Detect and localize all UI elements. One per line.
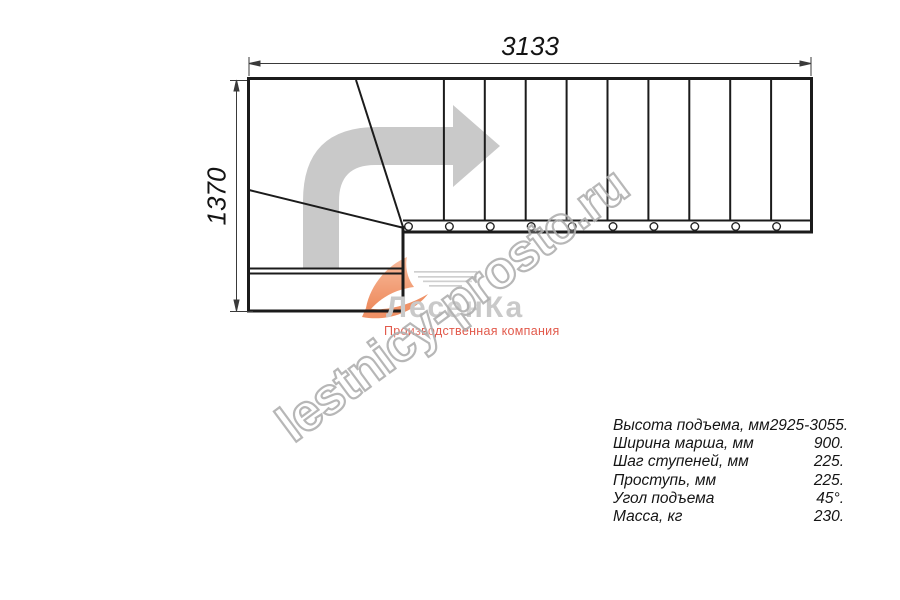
spec-row-tread: Проступь, мм 225. bbox=[613, 472, 844, 490]
height-dimension-label: 1370 bbox=[202, 147, 233, 247]
spec-label: Угол подъема bbox=[613, 490, 714, 508]
staircase-blueprint: 3133 1370 ЛесенКа Производственная компа… bbox=[0, 0, 900, 600]
spec-label: Ширина марша, мм bbox=[613, 435, 754, 453]
spec-value: 230. bbox=[814, 508, 844, 526]
spec-row-step-pitch: Шаг ступеней, мм 225. bbox=[613, 453, 844, 471]
spec-row-mass: Масса, кг 230. bbox=[613, 508, 844, 526]
spec-value: 900. bbox=[814, 435, 844, 453]
spec-table: Высота подъема, мм 2925-3055. Ширина мар… bbox=[613, 417, 844, 526]
spec-value: 2925-3055. bbox=[770, 417, 848, 435]
spec-value: 225. bbox=[814, 472, 844, 490]
spec-label: Масса, кг bbox=[613, 508, 682, 526]
spec-value: 45°. bbox=[816, 490, 844, 508]
width-dimension-label: 3133 bbox=[480, 31, 580, 62]
spec-value: 225. bbox=[814, 453, 844, 471]
spec-row-angle: Угол подъема 45°. bbox=[613, 490, 844, 508]
spec-label: Шаг ступеней, мм bbox=[613, 453, 749, 471]
spec-row-flight-width: Ширина марша, мм 900. bbox=[613, 435, 844, 453]
logo-tagline: Производственная компания bbox=[384, 324, 560, 338]
spec-label: Проступь, мм bbox=[613, 472, 716, 490]
spec-row-height: Высота подъема, мм 2925-3055. bbox=[613, 417, 844, 435]
logo-company-name: ЛесенКа bbox=[386, 291, 524, 325]
spec-label: Высота подъема, мм bbox=[613, 417, 770, 435]
baluster-circles bbox=[405, 223, 781, 231]
